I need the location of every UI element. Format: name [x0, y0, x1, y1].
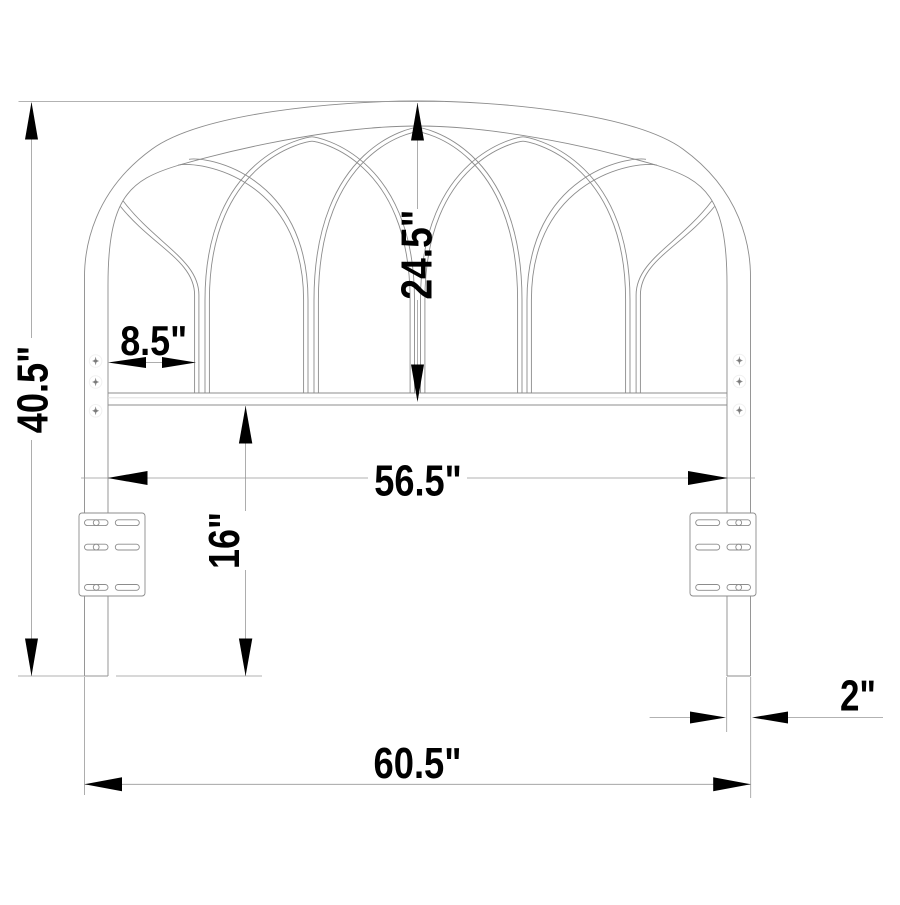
svg-text:8.5": 8.5": [120, 317, 187, 364]
svg-text:40.5": 40.5": [9, 346, 58, 434]
svg-text:16": 16": [200, 512, 249, 569]
svg-text:60.5": 60.5": [374, 739, 462, 788]
svg-text:56.5": 56.5": [374, 457, 462, 506]
svg-text:24.5": 24.5": [393, 210, 442, 300]
svg-text:2": 2": [840, 672, 876, 721]
